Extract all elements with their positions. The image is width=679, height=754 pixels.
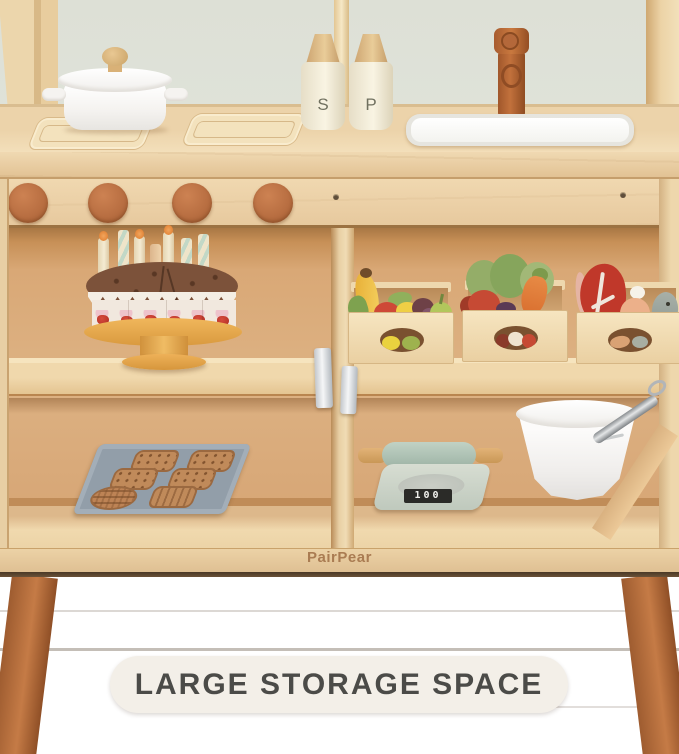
banner-label: LARGE STORAGE SPACE xyxy=(110,656,568,713)
floor-plank-seam xyxy=(0,648,679,651)
candle-flame xyxy=(164,225,173,235)
pot-handle-left xyxy=(42,88,66,101)
toy-tomato xyxy=(522,334,536,348)
stove-knob-3 xyxy=(172,183,212,223)
panel-screw xyxy=(620,192,626,198)
base-shadow-line xyxy=(0,572,679,577)
brand-logo: PairPear xyxy=(0,549,679,566)
crate-vegetables xyxy=(462,270,568,362)
candle-flame xyxy=(99,231,108,241)
toy-birthday-cake xyxy=(84,226,244,376)
crate-front-panel xyxy=(348,312,454,364)
toy-avocado xyxy=(402,336,420,350)
toy-waffle-cookie xyxy=(86,486,141,510)
floor-plank-seam xyxy=(0,610,679,612)
sink-basin xyxy=(411,118,629,142)
salt-shaker-label: S xyxy=(317,95,328,114)
crate-fruits xyxy=(348,272,454,364)
toy-cracker xyxy=(147,486,199,508)
pepper-shaker-label: P xyxy=(365,95,376,114)
door-handle-right xyxy=(340,366,358,415)
panel-screw xyxy=(333,194,339,200)
crate-handle-hole xyxy=(494,326,538,350)
pepper-shaker: P xyxy=(349,62,393,130)
cabinet-side-panel-right xyxy=(659,179,679,572)
toy-sink xyxy=(406,114,634,146)
chicken-bone-knob xyxy=(630,286,645,299)
fish-eye xyxy=(666,302,670,306)
product-photo: S P xyxy=(0,0,679,754)
crate-front-panel xyxy=(576,312,679,364)
faucet-cap-detail xyxy=(501,32,519,50)
scale-body xyxy=(372,464,491,510)
stove-knob-4 xyxy=(253,183,293,223)
cabinet-side-panel-left xyxy=(0,179,9,572)
stove-knob-2 xyxy=(88,183,128,223)
whisk-handle xyxy=(591,394,659,445)
counter-front-edge xyxy=(0,152,679,179)
pot-handle-right xyxy=(164,88,188,101)
toy-lemon xyxy=(382,336,400,350)
toy-whisk xyxy=(588,382,678,452)
stove-knob-1 xyxy=(8,183,48,223)
candle-flame xyxy=(135,229,144,239)
pot-lid-knob xyxy=(102,47,128,66)
crate-handle-hole xyxy=(608,328,652,352)
toy-kitchen-scale: 100 xyxy=(378,460,490,512)
scale-display-value: 100 xyxy=(414,490,441,501)
faucet-handle-ring xyxy=(501,64,522,88)
right-frame-post xyxy=(646,0,679,116)
crate-handle-hole xyxy=(380,328,424,352)
toy-fish xyxy=(632,336,648,348)
cookie-tray xyxy=(73,444,252,514)
cake-stand-base xyxy=(122,354,206,370)
storage-banner: LARGE STORAGE SPACE xyxy=(110,656,568,713)
crate-front-panel xyxy=(462,310,568,362)
scale-display: 100 xyxy=(404,489,452,503)
stove-burner-plate xyxy=(182,114,307,145)
salt-shaker: S xyxy=(301,62,345,130)
banana-tip xyxy=(360,268,372,278)
crate-meat-fish xyxy=(576,272,679,364)
shelf-left-shadow xyxy=(9,398,331,414)
door-handle-left xyxy=(314,348,333,409)
toy-sausage xyxy=(609,334,631,349)
